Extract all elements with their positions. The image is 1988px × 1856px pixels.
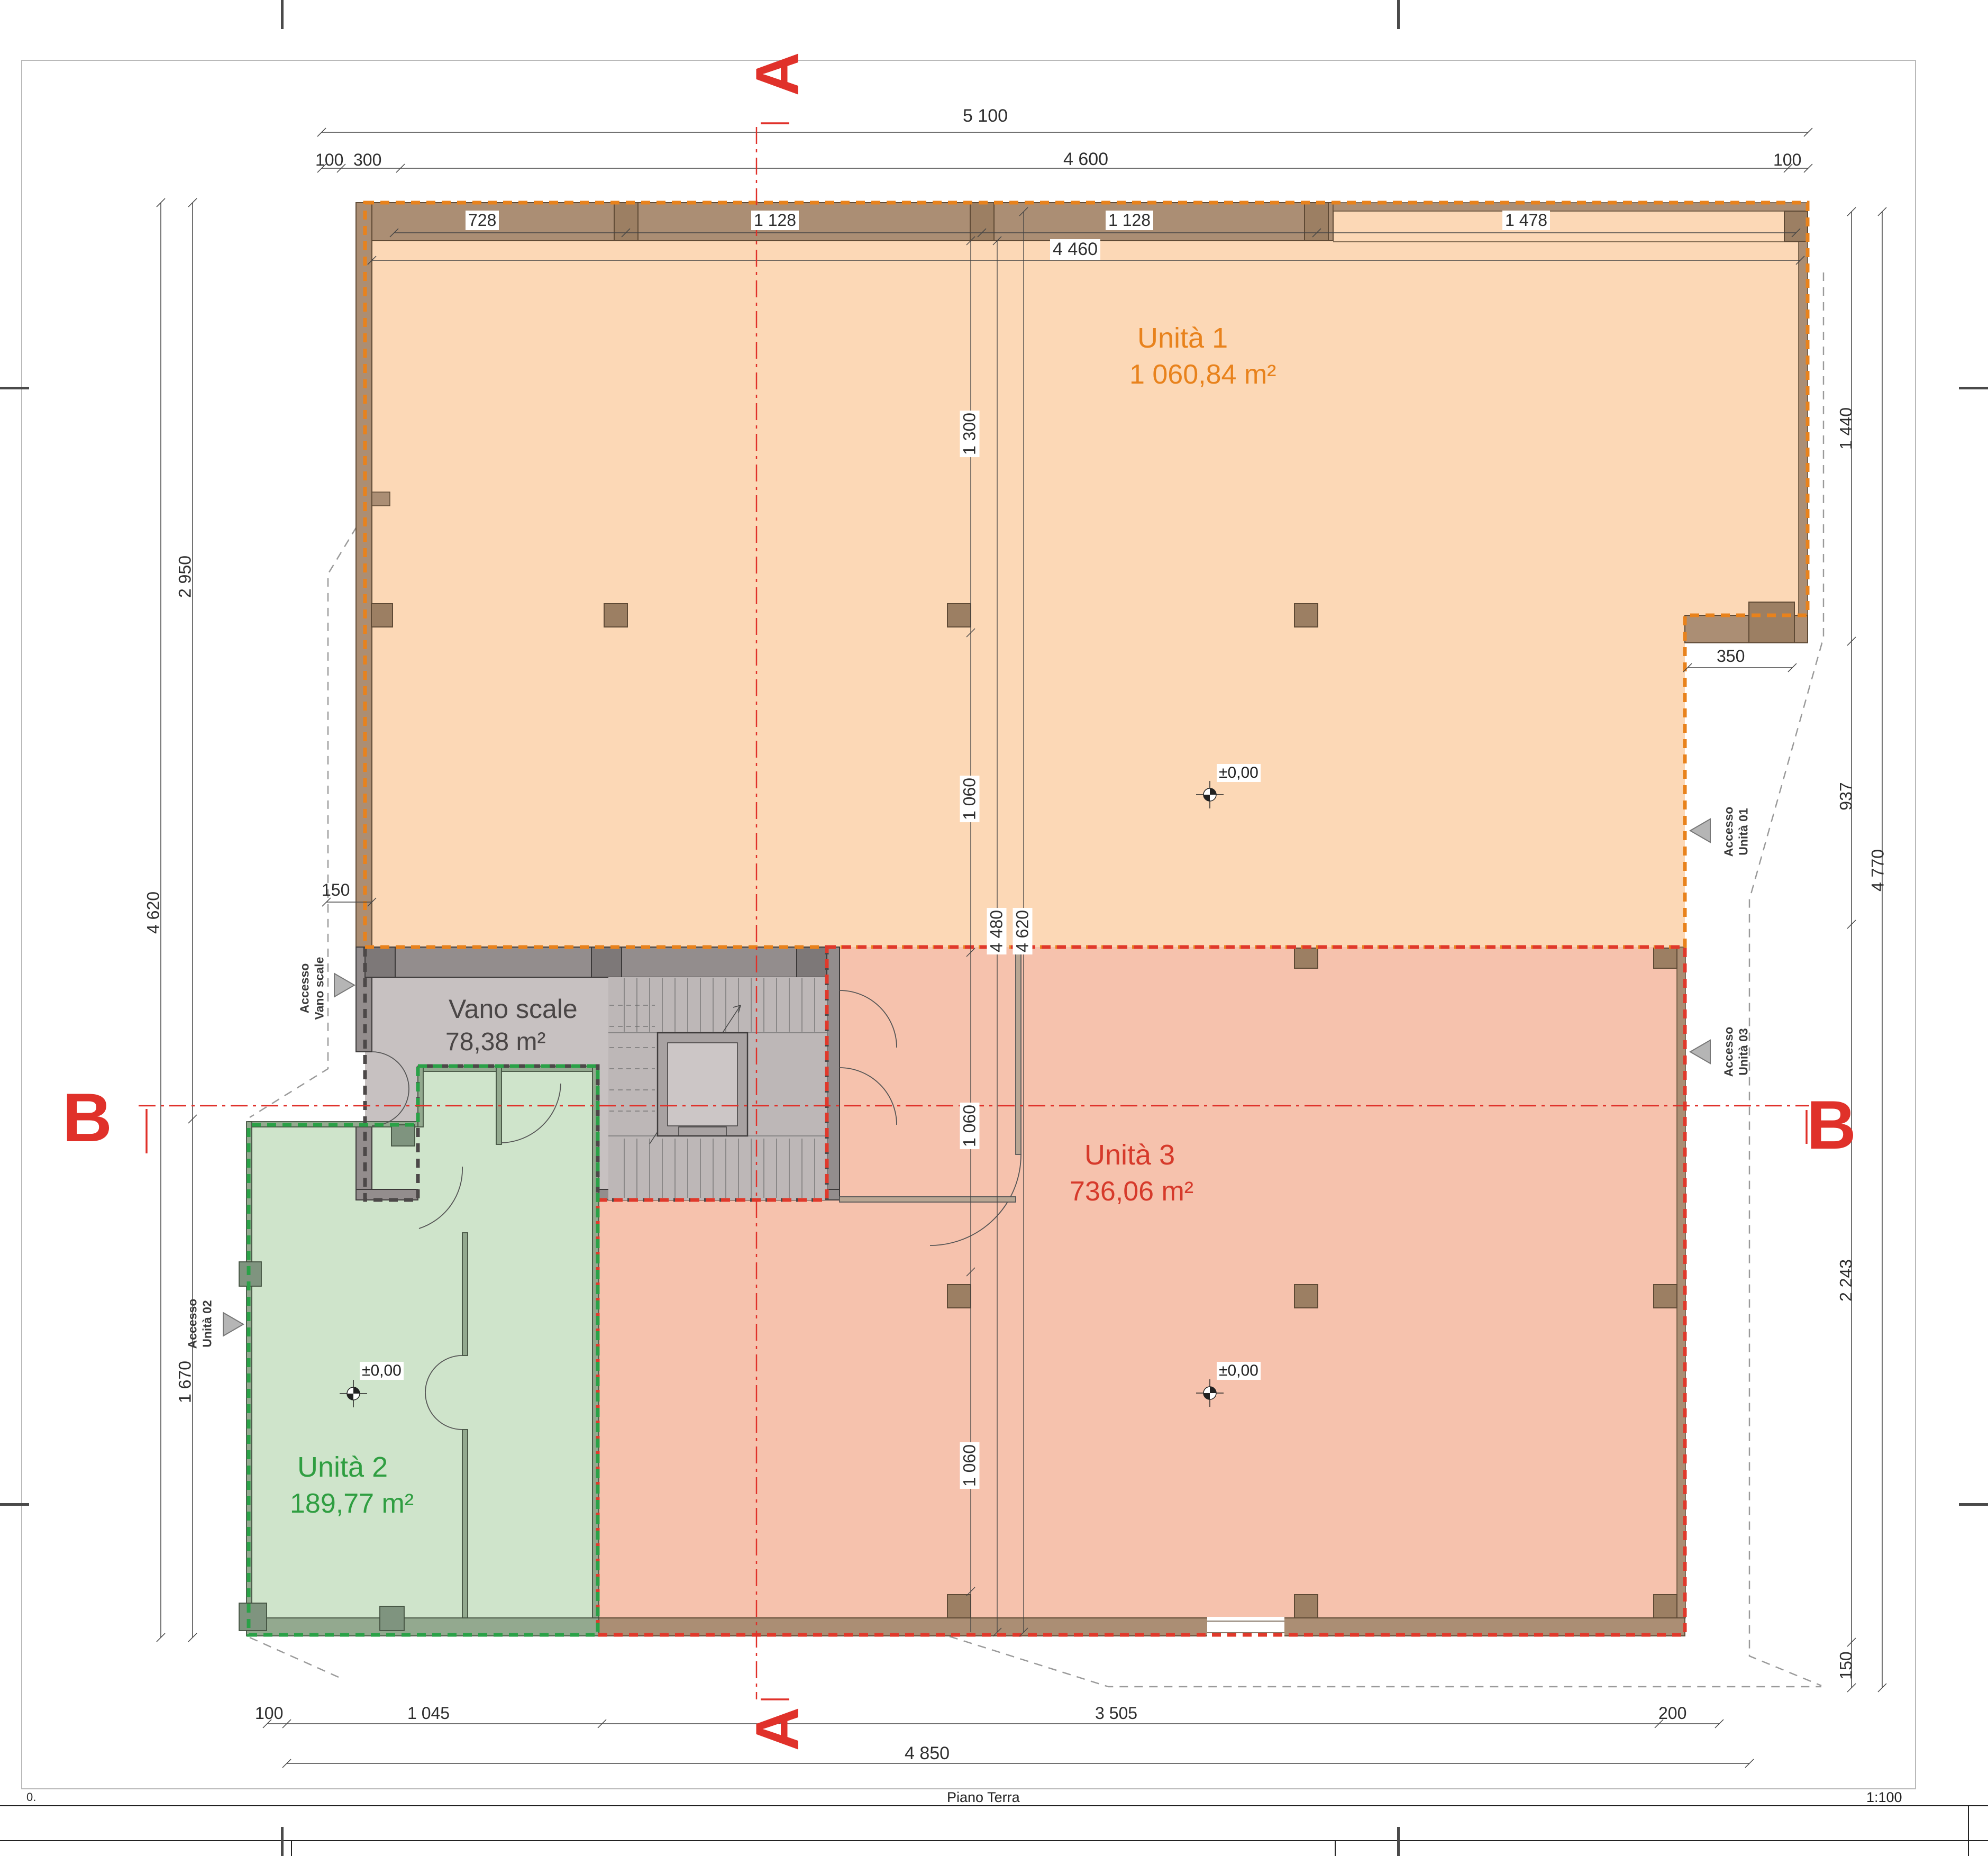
dim-right-350: 350 — [1717, 647, 1745, 666]
dim-bay-1478: 1 478 — [1502, 211, 1550, 230]
crop-mark — [1959, 387, 1988, 389]
dim-right-150: 150 — [1837, 1651, 1856, 1679]
crop-mark — [1959, 1503, 1988, 1506]
section-marker-a-top: A — [743, 52, 813, 96]
crop-mark — [1397, 1827, 1400, 1856]
dim-int-1300: 1 300 — [960, 411, 980, 457]
unit1-name: Unità 1 — [1137, 322, 1228, 354]
unit1-area: 1 060,84 m² — [1129, 359, 1276, 390]
crop-mark — [0, 1503, 29, 1506]
dim-top-300: 300 — [353, 150, 381, 170]
dim-top-4600: 4 600 — [1063, 149, 1108, 170]
sheet-number: 0. — [26, 1790, 36, 1804]
level-marker-unit1: ±0,00 — [1217, 764, 1261, 782]
vano-scale-area: 78,38 m² — [445, 1027, 545, 1057]
vano-scale-name: Vano scale — [449, 994, 578, 1024]
crop-mark — [281, 0, 284, 29]
section-marker-b-left: B — [62, 1078, 112, 1157]
dim-bay-1128b: 1 128 — [1106, 211, 1153, 230]
unit3-area: 736,06 m² — [1070, 1176, 1193, 1207]
dim-top-100-left: 100 — [315, 150, 343, 170]
dim-right-2243: 2 243 — [1837, 1259, 1856, 1302]
titleblock-line-2 — [0, 1840, 1988, 1841]
dim-top-100-right: 100 — [1773, 150, 1801, 170]
access-label-vano: Accesso Vano scale — [297, 957, 326, 1020]
titleblock-divider-1 — [291, 1840, 292, 1856]
dim-bottom-100: 100 — [255, 1704, 283, 1723]
dim-bay-728: 728 — [466, 211, 499, 230]
level-marker-unit2: ±0,00 — [360, 1362, 404, 1380]
dim-inner-4460: 4 460 — [1050, 239, 1100, 260]
titleblock-divider-2 — [1335, 1840, 1336, 1856]
crop-mark — [1397, 0, 1400, 29]
crop-mark — [281, 1827, 284, 1856]
dim-left-2950: 2 950 — [176, 556, 195, 598]
dim-bottom-1045: 1 045 — [407, 1704, 450, 1723]
level-marker-unit3: ±0,00 — [1217, 1362, 1261, 1380]
unit2-area: 189,77 m² — [290, 1488, 414, 1520]
access-label-u02: Accesso Unità 02 — [185, 1299, 214, 1349]
dim-bottom-4850: 4 850 — [905, 1743, 950, 1764]
access-label-u03: Accesso Unità 03 — [1721, 1027, 1750, 1077]
dim-right-4770: 4 770 — [1868, 849, 1888, 891]
titleblock-divider-3 — [1968, 1805, 1969, 1856]
dim-right-1440: 1 440 — [1837, 407, 1856, 450]
dim-bottom-3505: 3 505 — [1095, 1704, 1137, 1723]
sheet-title: Piano Terra — [947, 1789, 1020, 1806]
dim-overall-width: 5 100 — [963, 106, 1008, 126]
dim-bay-1128a: 1 128 — [751, 211, 799, 230]
drawing-sheet: 5 100 100 300 4 600 100 728 1 128 1 128 … — [0, 0, 1988, 1856]
section-marker-a-bottom: A — [743, 1707, 813, 1751]
dim-bottom-200: 200 — [1658, 1704, 1686, 1723]
dim-int-1060a: 1 060 — [960, 776, 980, 822]
section-marker-b-right: B — [1807, 1085, 1856, 1164]
unit3-name: Unità 3 — [1084, 1139, 1175, 1171]
dim-int-4480: 4 480 — [987, 908, 1007, 954]
unit2-name: Unità 2 — [297, 1451, 388, 1484]
dim-left-150: 150 — [322, 880, 350, 900]
dim-left-4620: 4 620 — [144, 891, 163, 934]
sheet-scale: 1:100 — [1866, 1789, 1902, 1806]
dim-int-1060b: 1 060 — [960, 1103, 980, 1149]
crop-mark — [0, 387, 29, 389]
access-label-u01: Accesso Unità 01 — [1721, 807, 1750, 857]
drawing-frame — [21, 60, 1916, 1789]
dim-int-1060c: 1 060 — [960, 1442, 980, 1489]
dim-int-4620: 4 620 — [1013, 908, 1033, 954]
dim-right-937: 937 — [1837, 782, 1856, 810]
dim-left-1670: 1 670 — [176, 1361, 195, 1403]
